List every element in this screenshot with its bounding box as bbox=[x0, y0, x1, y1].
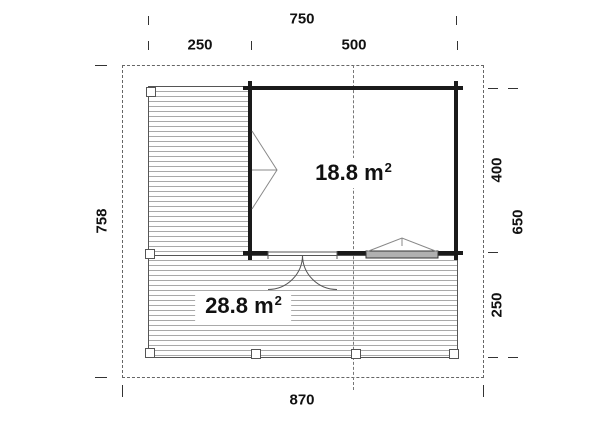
dim-tick bbox=[251, 41, 252, 50]
deck-area-label: 28.8 m2 bbox=[195, 291, 291, 321]
dim-top-right: 500 bbox=[341, 37, 366, 54]
dim-tick bbox=[122, 385, 123, 397]
deck-post bbox=[251, 349, 261, 359]
deck-post bbox=[351, 349, 361, 359]
dim-tick bbox=[457, 41, 458, 50]
dim-tick bbox=[148, 16, 149, 25]
dim-tick bbox=[456, 16, 457, 25]
dim-tick bbox=[488, 88, 498, 89]
deck-post bbox=[145, 249, 155, 259]
deck-area-value: 28.8 m bbox=[205, 293, 274, 318]
room-area-value: 18.8 m bbox=[315, 160, 384, 185]
tilt-window-icon bbox=[366, 238, 438, 258]
dim-right-deck: 250 bbox=[489, 292, 506, 317]
dim-tick bbox=[148, 41, 149, 50]
dim-tick bbox=[95, 65, 107, 66]
dim-tick bbox=[508, 88, 518, 89]
floor-plan: 750 250 500 758 400 650 250 870 18.8 m2 … bbox=[0, 0, 603, 439]
deck-post bbox=[145, 348, 155, 358]
dim-tick bbox=[488, 252, 498, 253]
dim-tick bbox=[483, 385, 484, 397]
dim-tick bbox=[95, 377, 107, 378]
deck-area-exponent: 2 bbox=[275, 293, 282, 308]
room-area-label: 18.8 m2 bbox=[305, 158, 401, 188]
dim-bottom-total: 870 bbox=[289, 392, 314, 409]
double-door-icon bbox=[268, 251, 337, 290]
room-area-exponent: 2 bbox=[385, 160, 392, 175]
dim-right-depth: 400 bbox=[489, 157, 506, 182]
dim-top-total: 750 bbox=[289, 11, 314, 28]
dim-tick bbox=[508, 357, 518, 358]
dim-left-height: 758 bbox=[94, 208, 111, 233]
deck-post bbox=[449, 349, 459, 359]
side-window-icon bbox=[252, 131, 277, 209]
deck-post bbox=[146, 87, 156, 97]
dim-tick bbox=[488, 357, 498, 358]
dim-top-left: 250 bbox=[187, 37, 212, 54]
dim-right-total: 650 bbox=[510, 209, 527, 234]
